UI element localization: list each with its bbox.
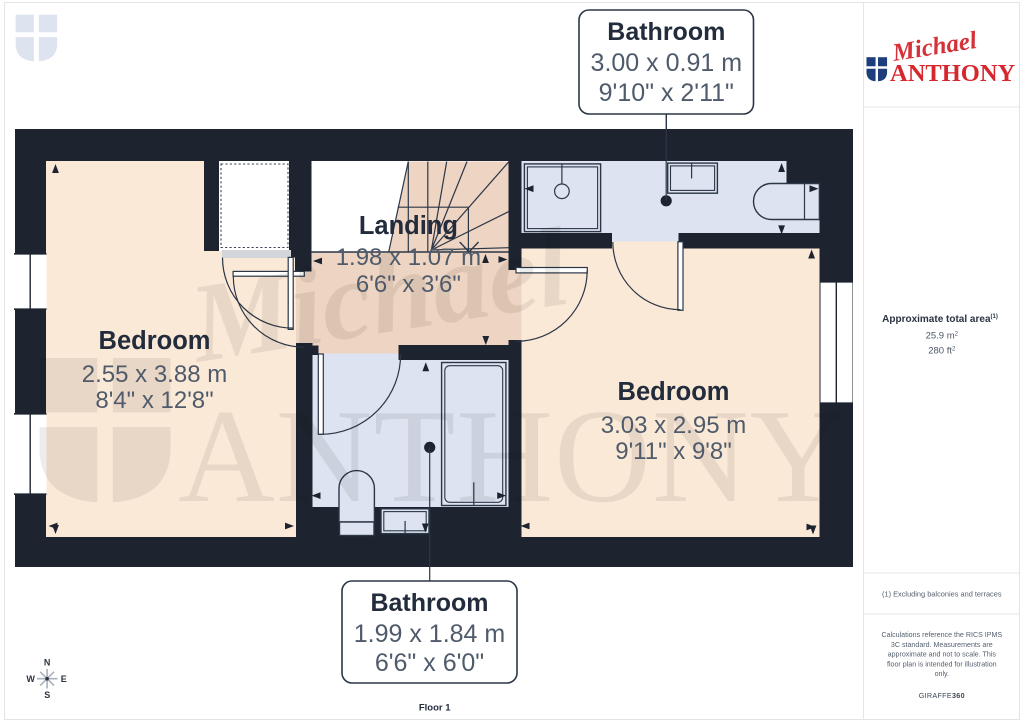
- svg-text:ANTHONY: ANTHONY: [178, 382, 847, 530]
- svg-text:3C standard. Measurements are: 3C standard. Measurements are: [891, 641, 993, 649]
- svg-text:E: E: [61, 674, 67, 684]
- svg-text:3.00 x 0.91 m: 3.00 x 0.91 m: [591, 49, 742, 77]
- svg-text:9'11" x 9'8": 9'11" x 9'8": [615, 438, 732, 465]
- svg-text:floor plan is intended for ill: floor plan is intended for illustration: [887, 660, 997, 668]
- svg-text:1.99 x 1.84 m: 1.99 x 1.84 m: [354, 620, 505, 648]
- svg-text:Bedroom: Bedroom: [618, 378, 730, 406]
- svg-text:8'4" x 12'8": 8'4" x 12'8": [95, 387, 213, 414]
- svg-text:6'6" x 6'0": 6'6" x 6'0": [375, 649, 484, 677]
- svg-text:N: N: [44, 658, 51, 668]
- svg-text:Bathroom: Bathroom: [607, 18, 725, 46]
- svg-text:Floor 1: Floor 1: [419, 703, 451, 714]
- svg-text:S: S: [44, 690, 50, 700]
- svg-text:1.98 x 1.07 m: 1.98 x 1.07 m: [336, 244, 481, 271]
- svg-text:ANTHONY: ANTHONY: [890, 60, 1016, 87]
- svg-text:Approximate total area(1): Approximate total area(1): [882, 314, 998, 325]
- svg-text:Bedroom: Bedroom: [99, 327, 211, 355]
- svg-text:(1) Excluding balconies and te: (1) Excluding balconies and terraces: [882, 590, 1002, 599]
- svg-text:2.55 x 3.88 m: 2.55 x 3.88 m: [82, 361, 227, 388]
- svg-text:280 ft2: 280 ft2: [928, 346, 956, 357]
- svg-text:GIRAFFE360: GIRAFFE360: [919, 691, 965, 700]
- svg-text:Landing: Landing: [359, 212, 458, 240]
- svg-text:W: W: [26, 674, 35, 684]
- svg-text:9'10" x 2'11": 9'10" x 2'11": [599, 79, 734, 107]
- svg-text:approximate and not to scale.: approximate and not to scale. This: [888, 651, 997, 659]
- svg-text:25.9 m2: 25.9 m2: [926, 331, 959, 342]
- svg-text:only.: only.: [935, 670, 949, 678]
- svg-text:Calculations reference the RIC: Calculations reference the RICS IPMS: [881, 631, 1002, 639]
- svg-text:Bathroom: Bathroom: [370, 589, 488, 617]
- svg-text:6'6" x 3'6": 6'6" x 3'6": [356, 271, 461, 298]
- svg-text:3.03 x 2.95 m: 3.03 x 2.95 m: [601, 412, 746, 439]
